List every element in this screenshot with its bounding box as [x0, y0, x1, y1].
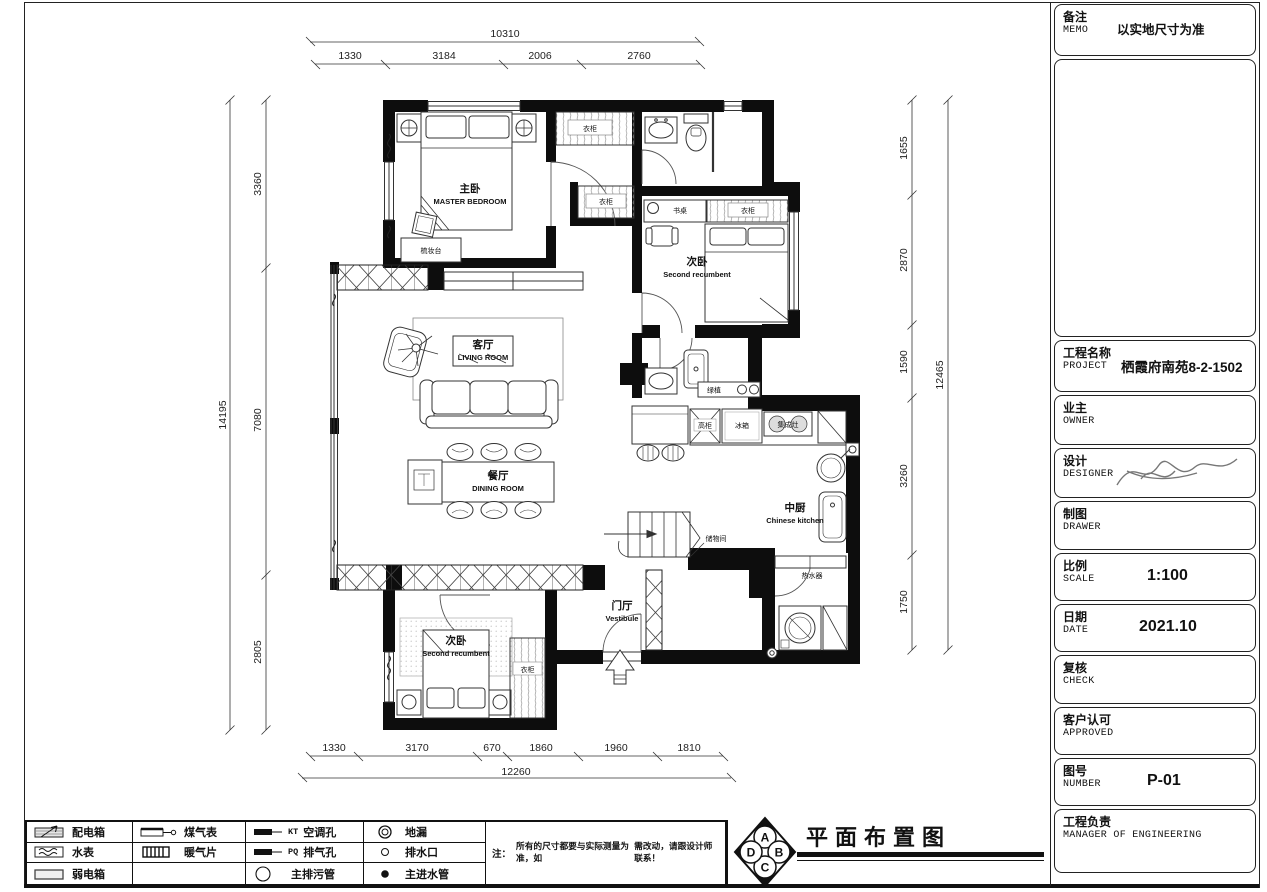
dim-bottom-6: 1810 — [677, 742, 701, 754]
living-label-cn: 客厅 — [472, 338, 494, 351]
number-value: P-01 — [1147, 772, 1181, 790]
legend-item-ac-hole: KT 空调孔 — [246, 822, 364, 843]
dim-right-1: 1655 — [898, 136, 910, 160]
dim-left-overall: 14195 — [217, 400, 229, 429]
titleblock-owner: 业主 OWNER — [1054, 395, 1256, 445]
floor-drain-symbol — [767, 648, 777, 658]
dim-top-overall: 10310 — [490, 28, 519, 40]
dresser-label: 梳妆台 — [421, 246, 442, 255]
desk-label: 书桌 — [673, 206, 687, 215]
legend-note: 注： 所有的尺寸都要与实际测量为准，如 需改动，请跟设计师联系！ — [486, 822, 726, 884]
distribution-box-icon — [33, 824, 67, 840]
memo-value: 以实地尺寸为准 — [1117, 19, 1205, 38]
gas-meter-icon — [139, 824, 179, 840]
bar-counter — [632, 406, 688, 444]
legend-item-water-meter: 水表 — [27, 843, 133, 864]
note-line1: 所有的尺寸都要与实际测量为准，如 — [516, 841, 629, 864]
owner-label-cn: 业主 — [1063, 401, 1247, 416]
drawing-title: 平面布置图 — [806, 820, 951, 852]
legend-item-weak-current-box: 弱电箱 — [27, 863, 133, 884]
ac-hole-tag: KT — [288, 827, 298, 837]
note-head: 注： — [492, 846, 511, 860]
legend-item-floor-drain: 地漏 — [364, 822, 486, 843]
dim-right-5: 1750 — [898, 590, 910, 614]
vestibule-label-cn: 门厅 — [612, 599, 633, 612]
armchair — [382, 325, 429, 379]
dim-top-2: 3184 — [432, 50, 456, 62]
bedroom2 — [644, 200, 788, 322]
legend-label: 地漏 — [405, 824, 427, 840]
storage-label: 储物间 — [706, 534, 727, 543]
legend-item-radiator: 暖气片 — [133, 843, 246, 864]
bedroom3-wardrobe — [510, 638, 545, 718]
titleblock-approved: 客户认可 APPROVED — [1054, 707, 1256, 755]
drawer-label-cn: 制图 — [1063, 507, 1247, 522]
titleblock-blank — [1054, 59, 1256, 337]
kitchen-label-en: Chinese kitchen — [766, 516, 824, 525]
legend-label: 主进水管 — [405, 866, 449, 882]
bedroom3-label-cn: 次卧 — [446, 634, 467, 647]
drawing-sheet: 主卧 MASTER BEDROOM 衣柜 梳妆台 衣柜 — [0, 0, 1267, 892]
toilet — [684, 114, 708, 123]
owner-label-en: OWNER — [1063, 416, 1247, 429]
kitchen-label-cn: 中厨 — [785, 501, 806, 514]
legend-label: 暖气片 — [184, 844, 217, 860]
title-underline-thin — [797, 860, 1044, 861]
dim-left-2: 7080 — [252, 408, 264, 432]
project-value: 栖霞府南苑8-2-1502 — [1121, 356, 1243, 376]
main-water-inlet-icon — [370, 866, 400, 882]
dim-bottom-2: 3170 — [405, 742, 429, 754]
master-label-cn: 主卧 — [460, 182, 481, 195]
dining-label-en: DINING ROOM — [472, 484, 524, 493]
title-block: 备注 MEMO 以实地尺寸为准 工程名称 PROJECT 栖霞府南苑8-2-15… — [1054, 4, 1256, 884]
compass-d: D — [747, 846, 756, 860]
dim-bottom-4: 1860 — [529, 742, 553, 754]
scale-value: 1:100 — [1147, 567, 1188, 585]
dim-bottom-overall: 12260 — [501, 766, 530, 778]
legend-label: 配电箱 — [72, 824, 105, 840]
drawer-label-en: DRAWER — [1063, 522, 1247, 535]
date-value: 2021.10 — [1139, 618, 1197, 636]
note-line2: 需改动，请跟设计师联系！ — [634, 841, 719, 864]
legend-label: 煤气表 — [184, 824, 217, 840]
ac-hole-icon — [252, 824, 286, 840]
tall-cabinet-label: 高柜 — [698, 421, 712, 430]
bedroom3-label-en: Second recumbent — [422, 649, 490, 658]
dim-right-4: 3260 — [898, 464, 910, 488]
panel-divider — [1050, 2, 1051, 886]
stove-label: 集成灶 — [778, 420, 799, 429]
legend-label: 弱电箱 — [72, 866, 105, 882]
titleblock-scale: 比例 SCALE 1:100 — [1054, 553, 1256, 601]
designer-signature — [1107, 449, 1247, 497]
drain-outlet-icon — [370, 844, 400, 860]
dim-right-2: 2870 — [898, 248, 910, 272]
living-room — [382, 318, 563, 428]
fridge-label: 冰箱 — [735, 421, 749, 430]
titleblock-date: 日期 DATE 2021.10 — [1054, 604, 1256, 652]
wall-outlet — [846, 443, 859, 456]
manager-label-cn: 工程负责 — [1063, 815, 1247, 830]
master-label-en: MASTER BEDROOM — [434, 197, 507, 206]
dim-left-3: 2805 — [252, 640, 264, 664]
compass-a: A — [761, 831, 770, 845]
titleblock-project: 工程名称 PROJECT 栖霞府南苑8-2-1502 — [1054, 340, 1256, 392]
check-label-en: CHECK — [1063, 676, 1247, 689]
titleblock-drawer: 制图 DRAWER — [1054, 501, 1256, 550]
wardrobe-label-2: 衣柜 — [599, 197, 613, 206]
bathroom-top — [645, 112, 713, 172]
dining-room — [408, 444, 554, 519]
entry-arrow — [606, 650, 634, 684]
titleblock-designer: 设计 DESIGNER — [1054, 448, 1256, 498]
dim-left-1: 3360 — [252, 172, 264, 196]
plant-label: 绿植 — [707, 386, 721, 395]
floor-plan: 主卧 MASTER BEDROOM 衣柜 梳妆台 衣柜 — [0, 0, 1050, 818]
desk-chair — [650, 226, 674, 246]
vestibule-label-en: Vestibule — [606, 614, 639, 623]
dim-bottom-5: 1960 — [604, 742, 628, 754]
legend-label: 主排污管 — [291, 866, 335, 882]
dim-right-overall: 12465 — [934, 360, 946, 389]
dim-right-3: 1590 — [898, 350, 910, 374]
water-heater-label: 热水器 — [802, 571, 823, 580]
radiator-icon — [139, 844, 179, 860]
utility-room — [767, 556, 847, 658]
titleblock-memo: 备注 MEMO 以实地尺寸为准 — [1054, 4, 1256, 56]
dim-top-1: 1330 — [338, 50, 362, 62]
dining-label-cn: 餐厅 — [487, 469, 509, 482]
check-label-cn: 复核 — [1063, 661, 1247, 676]
legend-label: 排水口 — [405, 844, 438, 860]
dim-bottom-1: 1330 — [322, 742, 346, 754]
dim-bottom-3: 670 — [483, 742, 501, 754]
legend-item-drain-outlet: 排水口 — [364, 843, 486, 864]
wardrobe-label-1: 衣柜 — [583, 124, 597, 133]
main-sewage-pipe-icon — [252, 865, 286, 883]
water-meter-icon — [33, 844, 67, 860]
bedroom2-label-cn: 次卧 — [687, 255, 708, 268]
bathroom-middle — [645, 350, 760, 397]
compass-b: B — [775, 846, 784, 860]
legend-item-exhaust-hole: PQ 排气孔 — [246, 843, 364, 864]
exhaust-hole-icon — [252, 844, 286, 860]
exhaust-hole-tag: PQ — [288, 847, 298, 857]
manager-label-en: MANAGER OF ENGINEERING — [1063, 830, 1247, 843]
dim-top-4: 2760 — [627, 50, 651, 62]
compass: A B C D — [733, 816, 797, 888]
title-underline — [797, 852, 1044, 857]
wardrobe-label-4: 衣柜 — [521, 665, 535, 674]
dining-table — [442, 462, 554, 502]
compass-c: C — [761, 861, 770, 875]
wardrobe-label-3: 衣柜 — [741, 206, 755, 215]
bedroom2-label-en: Second recumbent — [663, 270, 731, 279]
legend-item-main-sewage: 主排污管 — [246, 863, 364, 884]
dim-top-3: 2006 — [528, 50, 552, 62]
legend-item-main-water-inlet: 主进水管 — [364, 863, 486, 884]
legend-item-distribution-box: 配电箱 — [27, 822, 133, 843]
titleblock-manager: 工程负责 MANAGER OF ENGINEERING — [1054, 809, 1256, 873]
weak-current-box-icon — [33, 866, 67, 882]
sofa — [420, 380, 558, 428]
living-label-en: LIVING ROOM — [458, 353, 508, 362]
legend-label: 水表 — [72, 844, 94, 860]
floor-drain-icon — [370, 824, 400, 840]
approved-label-cn: 客户认可 — [1063, 713, 1247, 728]
legend-table: 配电箱 煤气表 KT 空调孔 地漏 注： 所有的尺寸都要与实际测量为准，如 需改… — [25, 820, 728, 886]
legend-label: 排气孔 — [303, 844, 336, 860]
legend-item-empty — [133, 863, 246, 884]
titleblock-check: 复核 CHECK — [1054, 655, 1256, 704]
titleblock-number: 图号 NUMBER P-01 — [1054, 758, 1256, 806]
stairs — [604, 512, 704, 557]
approved-label-en: APPROVED — [1063, 728, 1247, 741]
legend-label: 空调孔 — [303, 824, 336, 840]
legend-item-gas-meter: 煤气表 — [133, 822, 246, 843]
